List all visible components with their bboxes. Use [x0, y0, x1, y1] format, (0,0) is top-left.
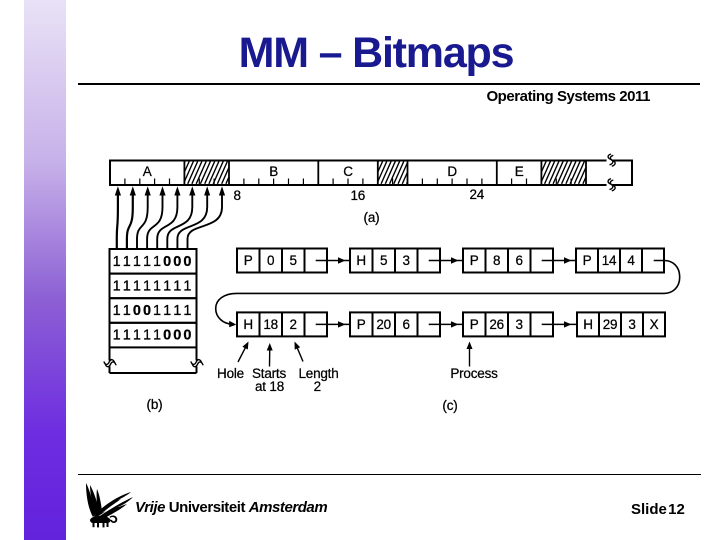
svg-text:2: 2: [314, 379, 321, 394]
svg-text:P: P: [470, 253, 479, 268]
svg-text:6: 6: [403, 317, 410, 332]
svg-text:0: 0: [267, 253, 274, 268]
svg-text:8: 8: [493, 253, 500, 268]
svg-text:24: 24: [470, 187, 485, 202]
svg-text:1: 1: [123, 278, 131, 294]
svg-text:(b): (b): [147, 397, 163, 412]
svg-text:0: 0: [163, 254, 171, 270]
svg-text:X: X: [650, 317, 659, 332]
svg-text:1: 1: [143, 254, 151, 270]
svg-text:at 18: at 18: [255, 379, 284, 394]
svg-text:1: 1: [153, 328, 161, 344]
svg-text:1: 1: [113, 328, 121, 344]
svg-text:0: 0: [133, 303, 141, 319]
svg-text:1: 1: [113, 303, 121, 319]
svg-text:P: P: [244, 253, 253, 268]
svg-text:1: 1: [143, 328, 151, 344]
svg-text:0: 0: [183, 328, 191, 344]
svg-text:8: 8: [234, 188, 241, 203]
svg-text:A: A: [143, 164, 152, 179]
svg-text:0: 0: [163, 328, 171, 344]
svg-text:Process: Process: [450, 366, 498, 381]
svg-text:1: 1: [153, 254, 161, 270]
svg-text:5: 5: [380, 253, 387, 268]
svg-text:1: 1: [133, 254, 141, 270]
svg-text:1: 1: [153, 303, 161, 319]
svg-text:P: P: [583, 253, 592, 268]
svg-text:16: 16: [351, 188, 366, 203]
svg-text:1: 1: [113, 278, 121, 294]
svg-text:1: 1: [133, 328, 141, 344]
svg-text:3: 3: [516, 317, 523, 332]
svg-text:14: 14: [602, 253, 617, 268]
svg-text:Hole: Hole: [217, 366, 244, 381]
svg-text:0: 0: [143, 303, 151, 319]
svg-text:1: 1: [123, 254, 131, 270]
svg-text:3: 3: [628, 317, 635, 332]
svg-text:18: 18: [263, 317, 278, 332]
svg-text:0: 0: [183, 254, 191, 270]
svg-text:E: E: [515, 164, 524, 179]
svg-text:5: 5: [290, 253, 297, 268]
svg-text:H: H: [583, 317, 593, 332]
svg-text:2: 2: [290, 317, 297, 332]
svg-text:20: 20: [376, 317, 391, 332]
svg-text:1: 1: [163, 278, 171, 294]
svg-text:1: 1: [173, 278, 181, 294]
svg-text:C: C: [343, 164, 353, 179]
svg-text:B: B: [269, 164, 278, 179]
svg-text:1: 1: [183, 278, 191, 294]
svg-text:1: 1: [173, 303, 181, 319]
svg-text:1: 1: [153, 278, 161, 294]
svg-text:1: 1: [143, 278, 151, 294]
svg-text:1: 1: [163, 303, 171, 319]
svg-text:H: H: [243, 317, 253, 332]
svg-text:(a): (a): [364, 210, 380, 225]
svg-text:1: 1: [183, 303, 191, 319]
svg-text:29: 29: [603, 317, 618, 332]
svg-text:26: 26: [489, 317, 504, 332]
svg-text:1: 1: [113, 254, 121, 270]
svg-text:6: 6: [516, 253, 523, 268]
svg-text:D: D: [447, 164, 457, 179]
svg-text:1: 1: [133, 278, 141, 294]
svg-text:1: 1: [123, 328, 131, 344]
svg-text:P: P: [357, 317, 366, 332]
svg-text:3: 3: [403, 253, 410, 268]
svg-text:(c): (c): [442, 398, 457, 413]
svg-text:P: P: [470, 317, 479, 332]
svg-text:4: 4: [627, 253, 635, 268]
svg-text:1: 1: [123, 303, 131, 319]
svg-text:0: 0: [173, 328, 181, 344]
svg-text:H: H: [356, 253, 366, 268]
svg-text:0: 0: [173, 254, 181, 270]
